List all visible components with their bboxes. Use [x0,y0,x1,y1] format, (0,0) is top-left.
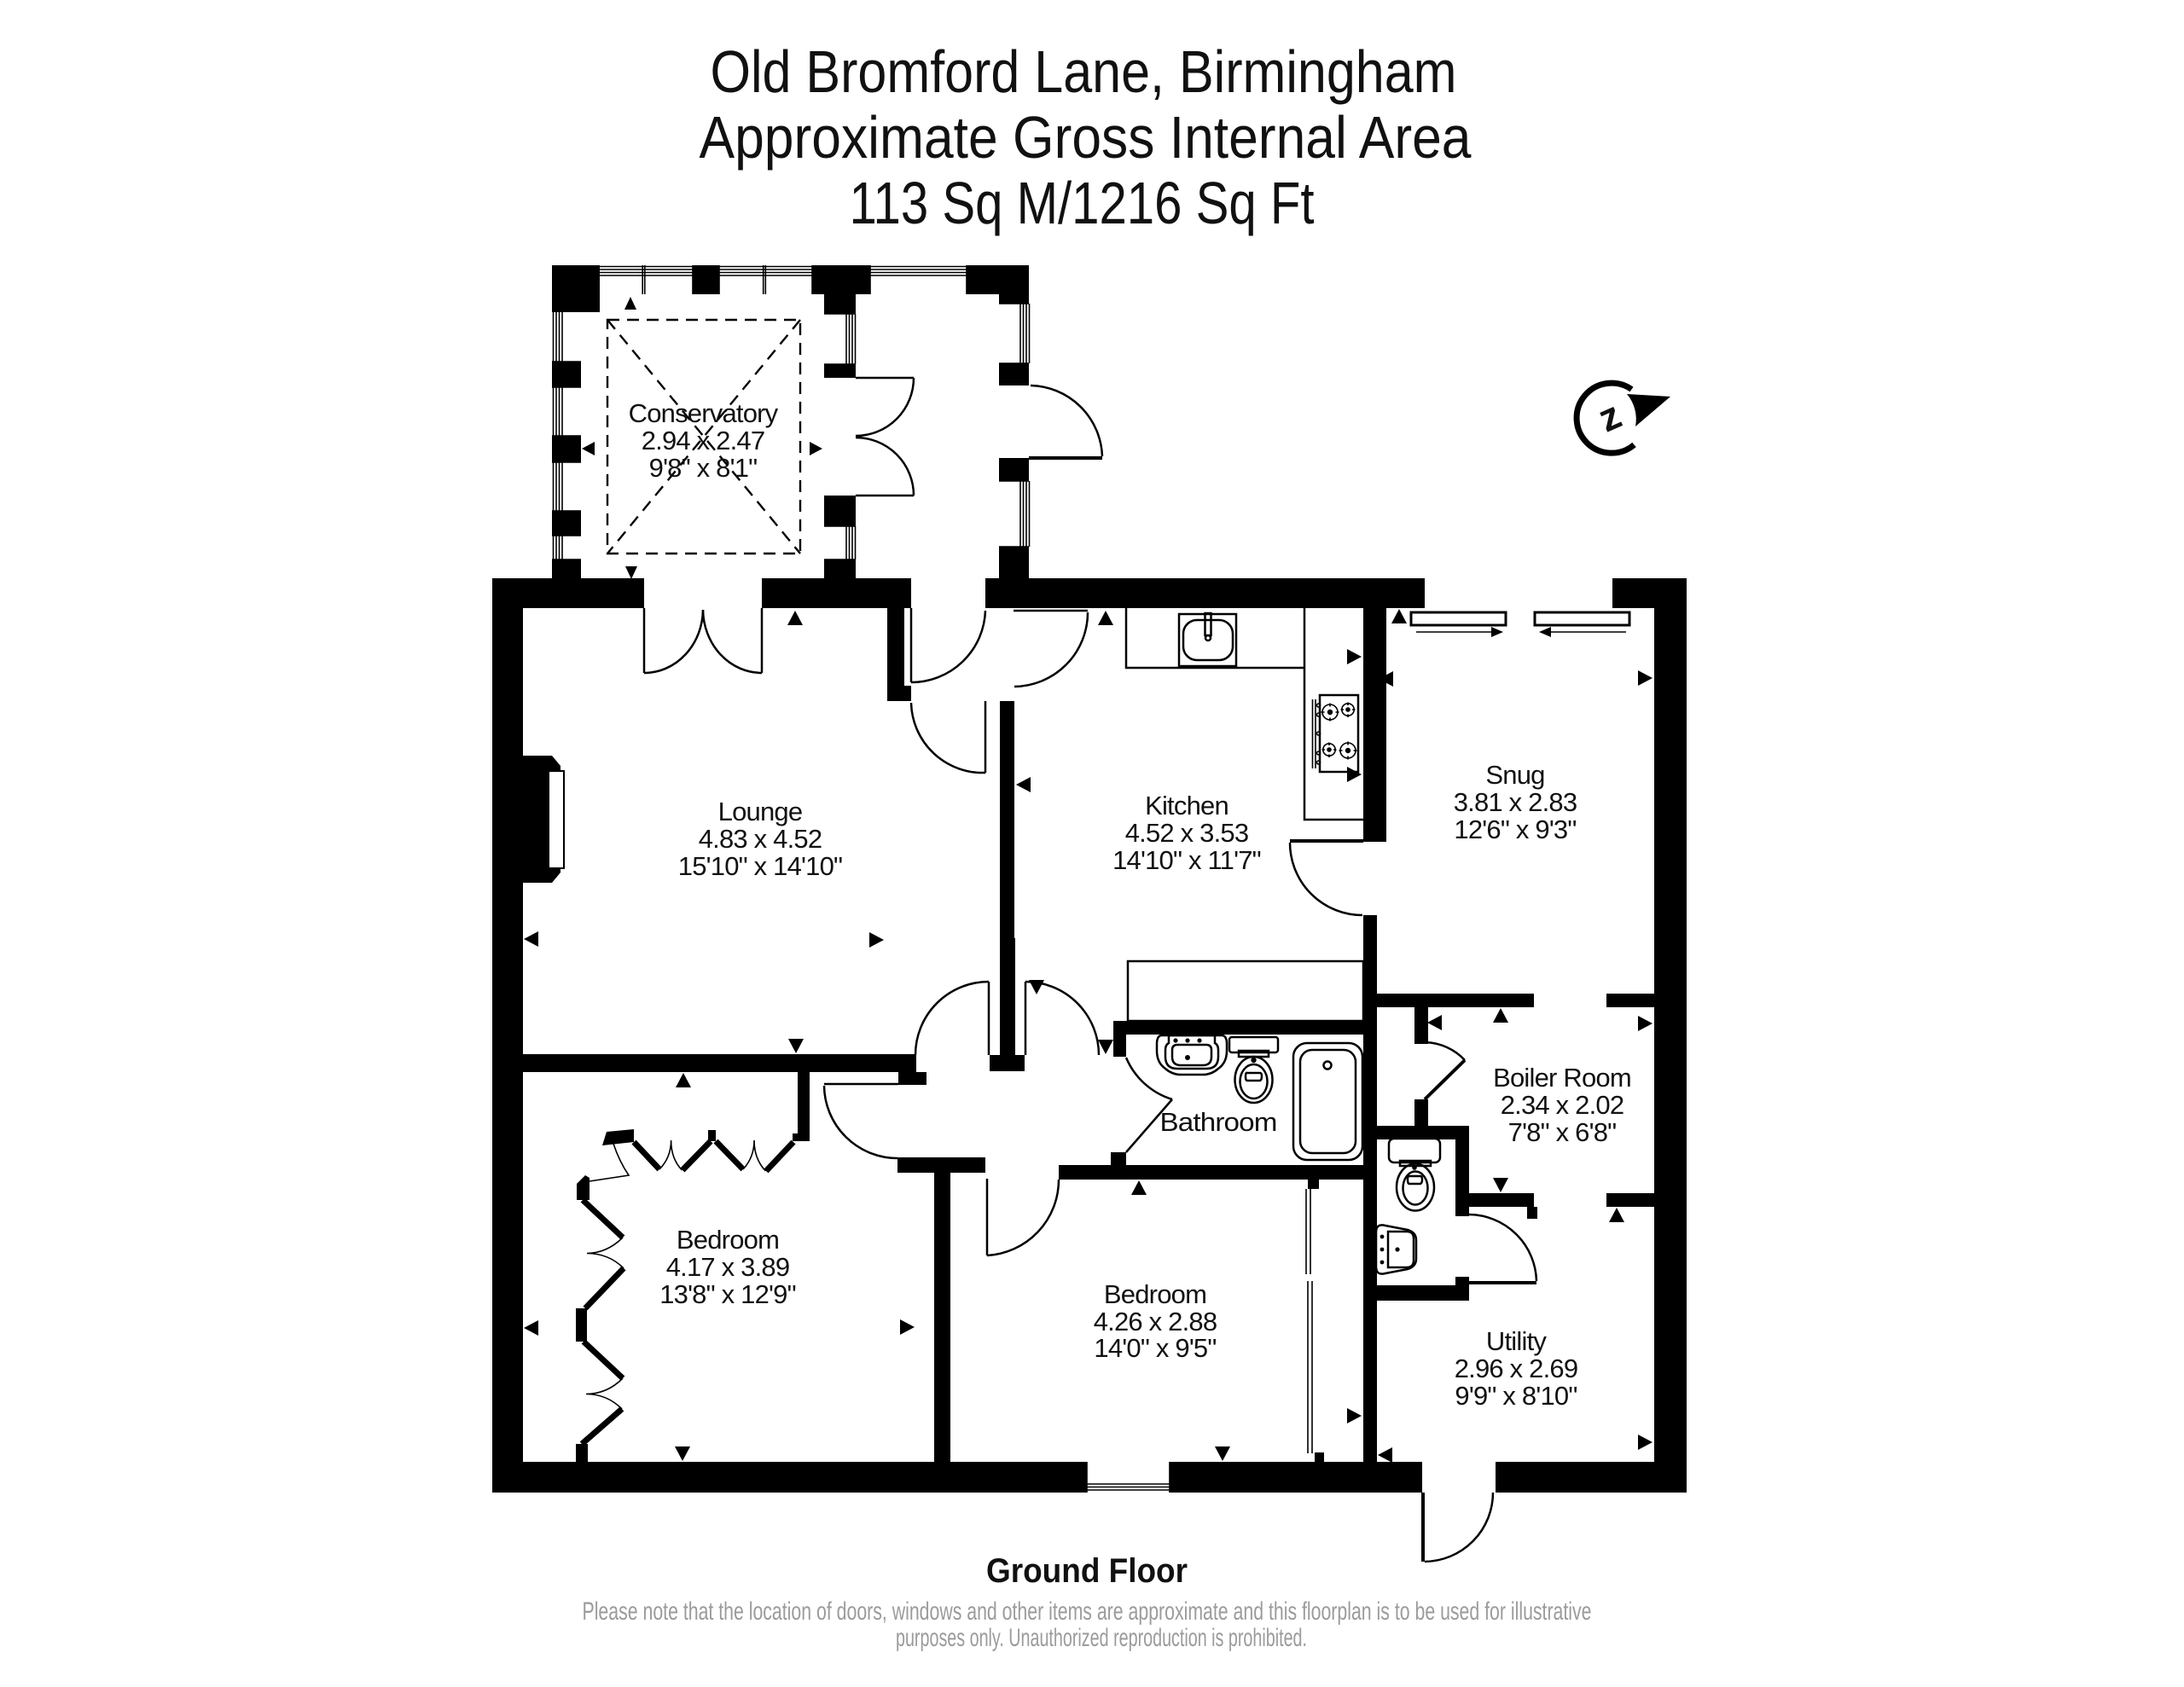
svg-text:9'8" x 8'1": 9'8" x 8'1" [649,453,758,483]
svg-text:Utility: Utility [1486,1326,1547,1356]
svg-text:2.34 x 2.02: 2.34 x 2.02 [1501,1090,1624,1120]
svg-text:Approximate Gross Internal Are: Approximate Gross Internal Area [700,104,1472,171]
svg-text:13'8" x 12'9": 13'8" x 12'9" [659,1279,796,1309]
svg-text:14'0" x 9'5": 14'0" x 9'5" [1094,1333,1216,1363]
svg-text:9'9" x 8'10": 9'9" x 8'10" [1455,1381,1577,1411]
svg-text:Bathroom: Bathroom [1160,1107,1277,1137]
svg-text:Please note that the location: Please note that the location of doors, … [583,1597,1592,1626]
svg-text:Bedroom: Bedroom [677,1225,779,1255]
svg-text:4.52 x 3.53: 4.52 x 3.53 [1125,818,1249,848]
svg-text:7'8" x 6'8": 7'8" x 6'8" [1508,1117,1617,1147]
svg-text:Kitchen: Kitchen [1145,791,1228,820]
svg-text:Boiler Room: Boiler Room [1493,1063,1631,1093]
svg-text:Ground Floor: Ground Floor [986,1552,1188,1590]
svg-text:Conservatory: Conservatory [629,398,779,428]
svg-text:4.26 x 2.88: 4.26 x 2.88 [1094,1307,1217,1336]
svg-text:4.83 x 4.52: 4.83 x 4.52 [699,824,822,854]
svg-text:Old Bromford Lane, Birmingham: Old Bromford Lane, Birmingham [711,38,1457,105]
svg-text:Snug: Snug [1485,760,1544,790]
svg-text:14'10" x 11'7": 14'10" x 11'7" [1112,845,1261,875]
svg-text:Bedroom: Bedroom [1104,1279,1206,1309]
svg-text:purposes only. Unauthorized re: purposes only. Unauthorized reproduction… [896,1624,1307,1652]
svg-text:Lounge: Lounge [718,797,803,826]
svg-text:12'6" x 9'3": 12'6" x 9'3" [1454,815,1576,844]
svg-text:2.94 x 2.47: 2.94 x 2.47 [642,426,765,455]
svg-text:2.96 x 2.69: 2.96 x 2.69 [1455,1354,1578,1383]
svg-text:15'10" x 14'10": 15'10" x 14'10" [678,851,843,881]
svg-text:113 Sq M/1216 Sq Ft: 113 Sq M/1216 Sq Ft [850,170,1315,236]
svg-text:4.17 x 3.89: 4.17 x 3.89 [666,1252,790,1282]
svg-text:3.81 x 2.83: 3.81 x 2.83 [1454,787,1577,817]
